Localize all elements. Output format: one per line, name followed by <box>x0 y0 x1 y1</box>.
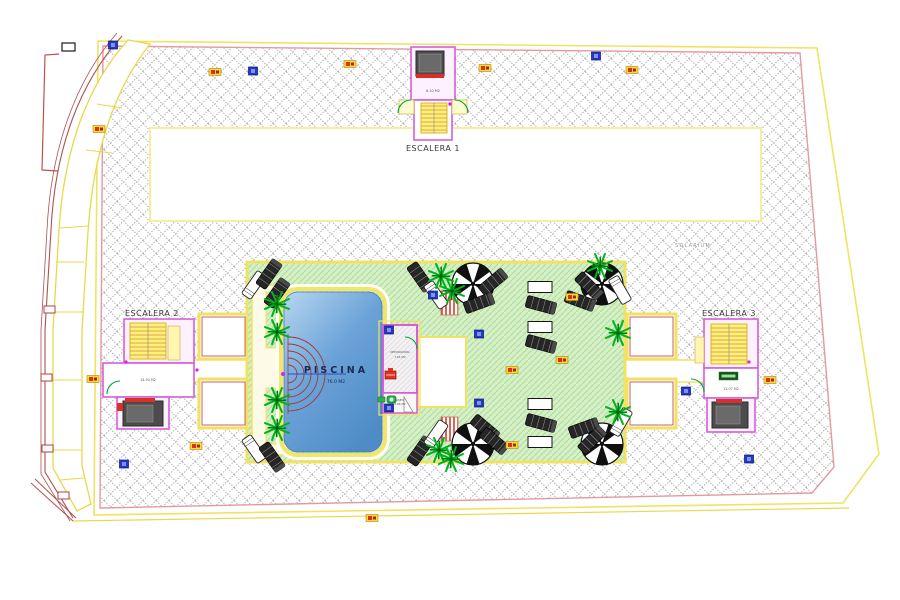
plant-room-walls <box>383 325 417 393</box>
marker-tag-icon <box>249 67 258 75</box>
table-icon <box>528 322 552 333</box>
tower-2-area-label: 14.50 M2 <box>140 378 156 382</box>
solarium-label: SOLARIUM <box>675 243 711 249</box>
balcony-red-box-2 <box>41 374 52 381</box>
marker-tag-icon <box>626 67 638 74</box>
side-flight <box>168 326 180 360</box>
planter <box>627 379 676 428</box>
elevator-icon <box>117 398 163 426</box>
planter <box>199 379 248 428</box>
floor-finish-badge-inner <box>722 375 736 378</box>
bottom-walkway-line <box>73 508 849 521</box>
marker-tag-icon <box>344 61 356 68</box>
table-icon <box>528 282 552 293</box>
marker-tag-icon <box>745 455 754 463</box>
marker-tag-icon <box>87 376 99 383</box>
tower-2-label: ESCALERA 2 <box>125 309 179 318</box>
balcony-red-box-3 <box>42 445 53 452</box>
marker-tag-icon <box>682 387 691 395</box>
balcony-red-bracket <box>42 54 59 171</box>
elevator-icon <box>712 399 748 428</box>
handrail-dot <box>124 360 127 363</box>
marker-tag-icon <box>475 399 484 407</box>
elevator-icon <box>416 51 444 78</box>
green-tag-icon <box>378 397 385 402</box>
handrail-dot <box>448 102 451 105</box>
marker-tag-icon <box>385 326 394 334</box>
roof-opening <box>150 128 761 221</box>
marker-tag-icon <box>506 442 518 449</box>
tower-3-label: ESCALERA 3 <box>702 309 756 318</box>
marker-tag-icon <box>385 404 394 412</box>
stair-flight <box>421 103 447 133</box>
marker-tag-icon <box>190 443 202 450</box>
table-icon <box>528 399 552 410</box>
side-room <box>418 337 466 407</box>
marker-tag-icon <box>479 65 491 72</box>
marker-tag-icon <box>93 126 105 133</box>
marker-tag-icon <box>475 330 484 338</box>
marker-tag-icon <box>764 377 776 384</box>
handrail-dot <box>195 368 198 371</box>
side-wing <box>452 100 467 114</box>
marker-tag-icon <box>109 41 118 49</box>
planter <box>199 314 248 359</box>
marker-tag-icon <box>566 294 578 301</box>
tower-1-label: ESCALERA 1 <box>406 144 460 153</box>
pool: PISCINA 76.0 M2 <box>279 287 387 457</box>
marker-tag-icon <box>592 52 601 60</box>
tower-1-area-label: 6.10 M2 <box>426 89 440 93</box>
table-icon <box>528 437 552 448</box>
balcony-red-box-4 <box>58 492 69 499</box>
pool-label: PISCINA <box>304 365 368 376</box>
marker-tag-icon <box>506 367 518 374</box>
pool-area-label: 76.0 M2 <box>327 379 345 385</box>
marker-tag-icon <box>556 357 568 364</box>
balcony-red-box-1 <box>44 306 55 313</box>
marker-tag-icon <box>429 291 438 299</box>
planter <box>627 314 676 359</box>
pool-marker <box>281 372 285 376</box>
marker-tag-icon <box>120 460 129 468</box>
marker-tag-icon <box>209 69 221 76</box>
side-wing <box>695 337 704 363</box>
plant-room-area-label: 7.61 M2 <box>394 355 406 359</box>
corner-marker-box <box>62 43 75 51</box>
toilet-area-label: 2.66 M2 <box>394 402 406 406</box>
plant-room-label: DEPURADORA <box>390 350 410 354</box>
stair-flight <box>130 323 166 359</box>
marker-tag-icon <box>366 515 378 522</box>
floor-plan-canvas: PISCINA 76.0 M2 DEPURADORA 7.61 M2 ASEO … <box>0 0 900 600</box>
side-wing <box>399 100 414 114</box>
handrail-dot <box>747 360 750 363</box>
toilet-room: ASEO 2.66 M2 <box>378 393 417 413</box>
stair-flight <box>711 324 747 364</box>
tower-3-area-label: 11.07 M2 <box>723 387 739 391</box>
